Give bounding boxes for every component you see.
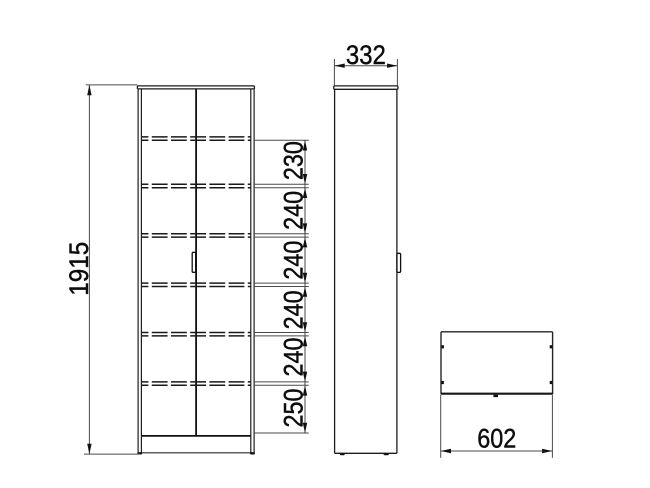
svg-text:250: 250 <box>278 389 308 428</box>
svg-text:602: 602 <box>477 423 516 453</box>
svg-text:1915: 1915 <box>64 242 94 296</box>
svg-text:240: 240 <box>278 338 308 377</box>
svg-text:240: 240 <box>278 241 308 280</box>
svg-text:332: 332 <box>346 40 386 70</box>
svg-text:240: 240 <box>278 290 308 329</box>
svg-text:230: 230 <box>278 141 308 180</box>
svg-text:240: 240 <box>278 191 308 230</box>
